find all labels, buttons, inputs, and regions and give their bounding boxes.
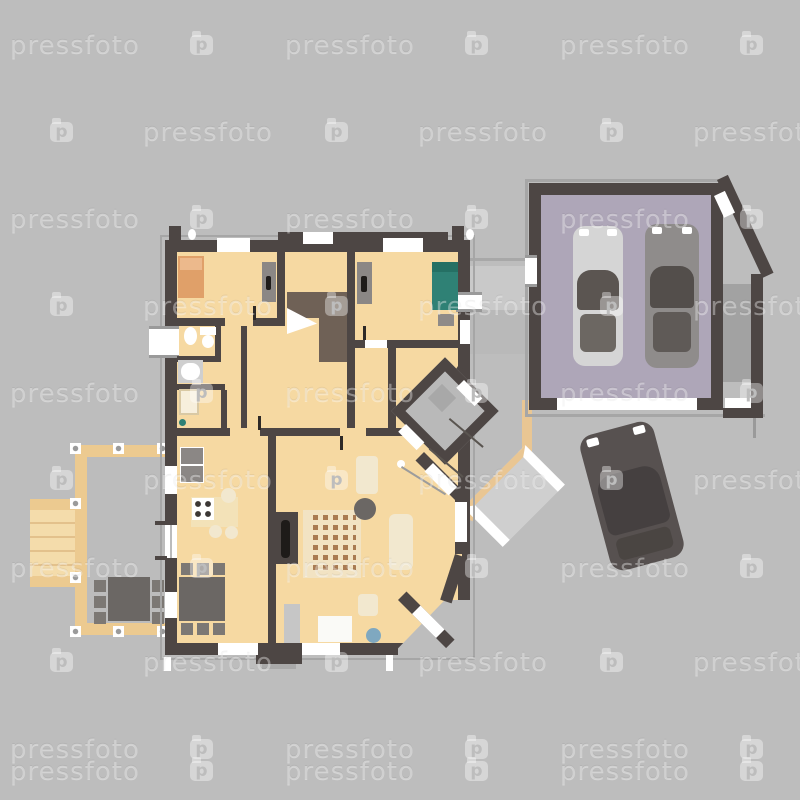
entrance-walkway bbox=[463, 445, 565, 547]
sliding-door-track bbox=[170, 525, 172, 558]
dining-table bbox=[179, 577, 225, 621]
car-dark-gray bbox=[645, 224, 699, 368]
porch-stub bbox=[256, 655, 302, 664]
toilet-bowl bbox=[202, 335, 214, 348]
deck-post bbox=[70, 626, 81, 637]
watermark-text: pressfoto bbox=[693, 650, 800, 676]
wall-segment bbox=[241, 326, 247, 428]
vent-cap bbox=[188, 229, 196, 240]
watermark-camera-icon: p bbox=[600, 122, 623, 142]
dining-chair bbox=[197, 563, 209, 575]
floor-drain bbox=[179, 419, 186, 426]
deck-post bbox=[70, 443, 81, 454]
sink bbox=[184, 327, 197, 345]
window-box-edge bbox=[456, 309, 482, 312]
watermark-text: pressfoto bbox=[560, 33, 690, 59]
watermark-text: pressfoto bbox=[285, 207, 415, 233]
watermark-camera-icon: p bbox=[740, 761, 763, 781]
watermark-camera-icon: p bbox=[190, 35, 213, 55]
watermark-camera-icon: p bbox=[190, 209, 213, 229]
fridge bbox=[180, 465, 204, 483]
watermark-text: pressfoto bbox=[285, 759, 415, 785]
watermark-text: pressfoto bbox=[418, 120, 548, 146]
deck-post bbox=[70, 498, 81, 509]
car-headlight bbox=[632, 424, 646, 435]
watermark-text: pressfoto bbox=[10, 737, 140, 763]
car-windshield bbox=[650, 266, 694, 308]
dining-chair bbox=[181, 563, 193, 575]
door-opening bbox=[165, 466, 177, 494]
watermark-camera-icon: p bbox=[465, 761, 488, 781]
outdoor-chair bbox=[94, 612, 106, 624]
toilet-tank bbox=[200, 327, 216, 335]
window-box-edge bbox=[525, 284, 537, 287]
window-box bbox=[458, 295, 482, 309]
chimney bbox=[169, 226, 181, 242]
outdoor-dining-table bbox=[108, 577, 150, 621]
car-cabin bbox=[653, 312, 691, 352]
round-table bbox=[354, 498, 376, 520]
side-yard-door bbox=[725, 398, 751, 408]
garage-wall bbox=[711, 183, 723, 410]
watermark-text: pressfoto bbox=[560, 737, 690, 763]
door-gap bbox=[225, 318, 253, 326]
bay-window-box bbox=[149, 329, 179, 355]
bed-pillows bbox=[432, 262, 458, 272]
washing-machine bbox=[179, 389, 199, 415]
car-headlight bbox=[586, 437, 600, 448]
deck-stairs bbox=[30, 499, 75, 587]
fireplace-hearth bbox=[281, 520, 290, 558]
watermark-camera-icon: p bbox=[190, 761, 213, 781]
stove bbox=[192, 498, 214, 520]
sofa bbox=[356, 456, 378, 494]
chimney bbox=[452, 226, 464, 242]
door-leaf bbox=[363, 326, 366, 340]
stool bbox=[225, 526, 238, 539]
side-yard-diagonal-wall bbox=[717, 175, 774, 278]
deck-post bbox=[113, 443, 124, 454]
porch-step bbox=[262, 664, 296, 669]
piano-bench bbox=[318, 616, 352, 642]
car-light-gray bbox=[573, 226, 623, 366]
watermark-text: pressfoto bbox=[10, 381, 140, 407]
watermark-text: pressfoto bbox=[693, 468, 800, 494]
outdoor-chair bbox=[152, 596, 164, 608]
door-leaf bbox=[258, 416, 261, 430]
watermark-camera-icon: p bbox=[325, 122, 348, 142]
door-gap bbox=[230, 428, 260, 436]
roof-outline bbox=[525, 179, 528, 417]
watermark-camera-icon: p bbox=[465, 739, 488, 759]
watermark-text: pressfoto bbox=[10, 207, 140, 233]
outdoor-chair bbox=[152, 612, 164, 624]
door-gap bbox=[340, 428, 366, 436]
window bbox=[383, 238, 423, 252]
dining-chair bbox=[181, 623, 193, 635]
car-windshield bbox=[577, 270, 619, 310]
fence-line bbox=[470, 258, 532, 261]
garage-window bbox=[525, 258, 537, 284]
stool bbox=[209, 525, 222, 538]
wall-segment bbox=[347, 252, 355, 436]
dining-chair bbox=[213, 563, 225, 575]
deck-post bbox=[113, 626, 124, 637]
watermark-camera-icon: p bbox=[190, 739, 213, 759]
garage-wall bbox=[723, 408, 763, 418]
wall-segment bbox=[177, 428, 347, 436]
dining-chair bbox=[213, 623, 225, 635]
wardrobe-handle bbox=[361, 276, 367, 292]
side-yard-path bbox=[723, 284, 751, 382]
door-leaf bbox=[253, 306, 256, 320]
door-leaf bbox=[340, 436, 343, 450]
car-windshield bbox=[594, 463, 671, 538]
wardrobe-handle bbox=[266, 276, 271, 290]
car-on-driveway bbox=[577, 419, 687, 574]
car-cabin bbox=[580, 314, 616, 352]
garage-door bbox=[557, 398, 697, 410]
watermark-camera-icon: p bbox=[465, 209, 488, 229]
watermark-text: pressfoto bbox=[693, 120, 800, 146]
armchair bbox=[358, 594, 378, 616]
watermark-camera-icon: p bbox=[325, 652, 348, 672]
wall-segment bbox=[221, 390, 227, 428]
bed-pillows bbox=[180, 258, 202, 270]
watermark-text: pressfoto bbox=[10, 759, 140, 785]
outdoor-chair bbox=[152, 580, 164, 592]
roof-outline bbox=[525, 179, 727, 182]
garage-wall bbox=[529, 183, 541, 410]
door-gap bbox=[365, 340, 387, 348]
door-jamb bbox=[155, 556, 167, 560]
door-opening bbox=[165, 592, 177, 618]
garage-wall bbox=[697, 398, 723, 410]
watermark-text: pressfoto bbox=[560, 759, 690, 785]
wall-segment bbox=[277, 252, 285, 326]
car-headlight bbox=[607, 229, 617, 236]
watermark-camera-icon: p bbox=[50, 296, 73, 316]
watermark-camera-icon: p bbox=[50, 652, 73, 672]
watermark-camera-icon: p bbox=[600, 652, 623, 672]
car-headlight bbox=[579, 229, 589, 236]
car-headlight bbox=[652, 227, 662, 234]
watermark-text: pressfoto bbox=[10, 33, 140, 59]
window bbox=[218, 643, 258, 655]
garage-wall bbox=[529, 398, 557, 410]
window bbox=[302, 643, 340, 655]
downspout bbox=[386, 655, 393, 671]
wall-segment bbox=[458, 348, 470, 368]
fridge bbox=[180, 447, 204, 465]
watermark-camera-icon: p bbox=[740, 739, 763, 759]
bathtub-basin bbox=[181, 363, 200, 380]
path-to-garage bbox=[470, 310, 530, 354]
watermark-text: pressfoto bbox=[285, 33, 415, 59]
back-door-opening bbox=[460, 320, 470, 344]
watermark-camera-icon: p bbox=[740, 558, 763, 578]
dotted-rug bbox=[303, 510, 361, 578]
watermark-text: pressfoto bbox=[285, 737, 415, 763]
wall-segment bbox=[268, 436, 276, 643]
watermark-camera-icon: p bbox=[740, 35, 763, 55]
outdoor-chair bbox=[94, 580, 106, 592]
chaise-lounge bbox=[389, 514, 413, 570]
watermark-camera-icon: p bbox=[465, 35, 488, 55]
window bbox=[303, 232, 333, 244]
outdoor-chair bbox=[94, 596, 106, 608]
car-headlight bbox=[682, 227, 692, 234]
watermark-text: pressfoto bbox=[143, 120, 273, 146]
garage-wall bbox=[529, 183, 723, 195]
bench bbox=[438, 314, 454, 326]
deck-post bbox=[70, 572, 81, 583]
stock-photo-canvas: pressfotoppressfotoppressfotoppressfotop… bbox=[0, 0, 800, 800]
ottoman-blue bbox=[366, 628, 381, 643]
watermark-camera-icon: p bbox=[50, 470, 73, 490]
watermark-camera-icon: p bbox=[50, 122, 73, 142]
path-line bbox=[753, 418, 756, 438]
downspout bbox=[164, 657, 171, 671]
entry-mat bbox=[284, 604, 300, 643]
side-yard-wall bbox=[751, 274, 763, 414]
bay-window bbox=[455, 502, 467, 542]
vent-cap bbox=[466, 229, 474, 240]
dining-chair bbox=[197, 623, 209, 635]
window-box-edge bbox=[149, 355, 179, 358]
staircase bbox=[319, 318, 347, 362]
wall-segment bbox=[388, 348, 396, 428]
window bbox=[217, 238, 250, 252]
stool bbox=[221, 488, 236, 503]
